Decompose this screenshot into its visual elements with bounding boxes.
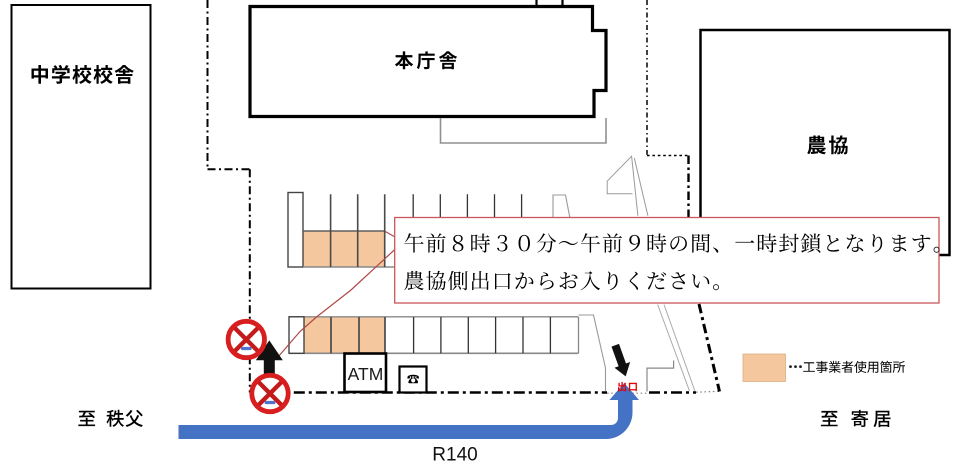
- svg-text:R140: R140: [432, 445, 477, 466]
- svg-text:ATM: ATM: [348, 364, 384, 384]
